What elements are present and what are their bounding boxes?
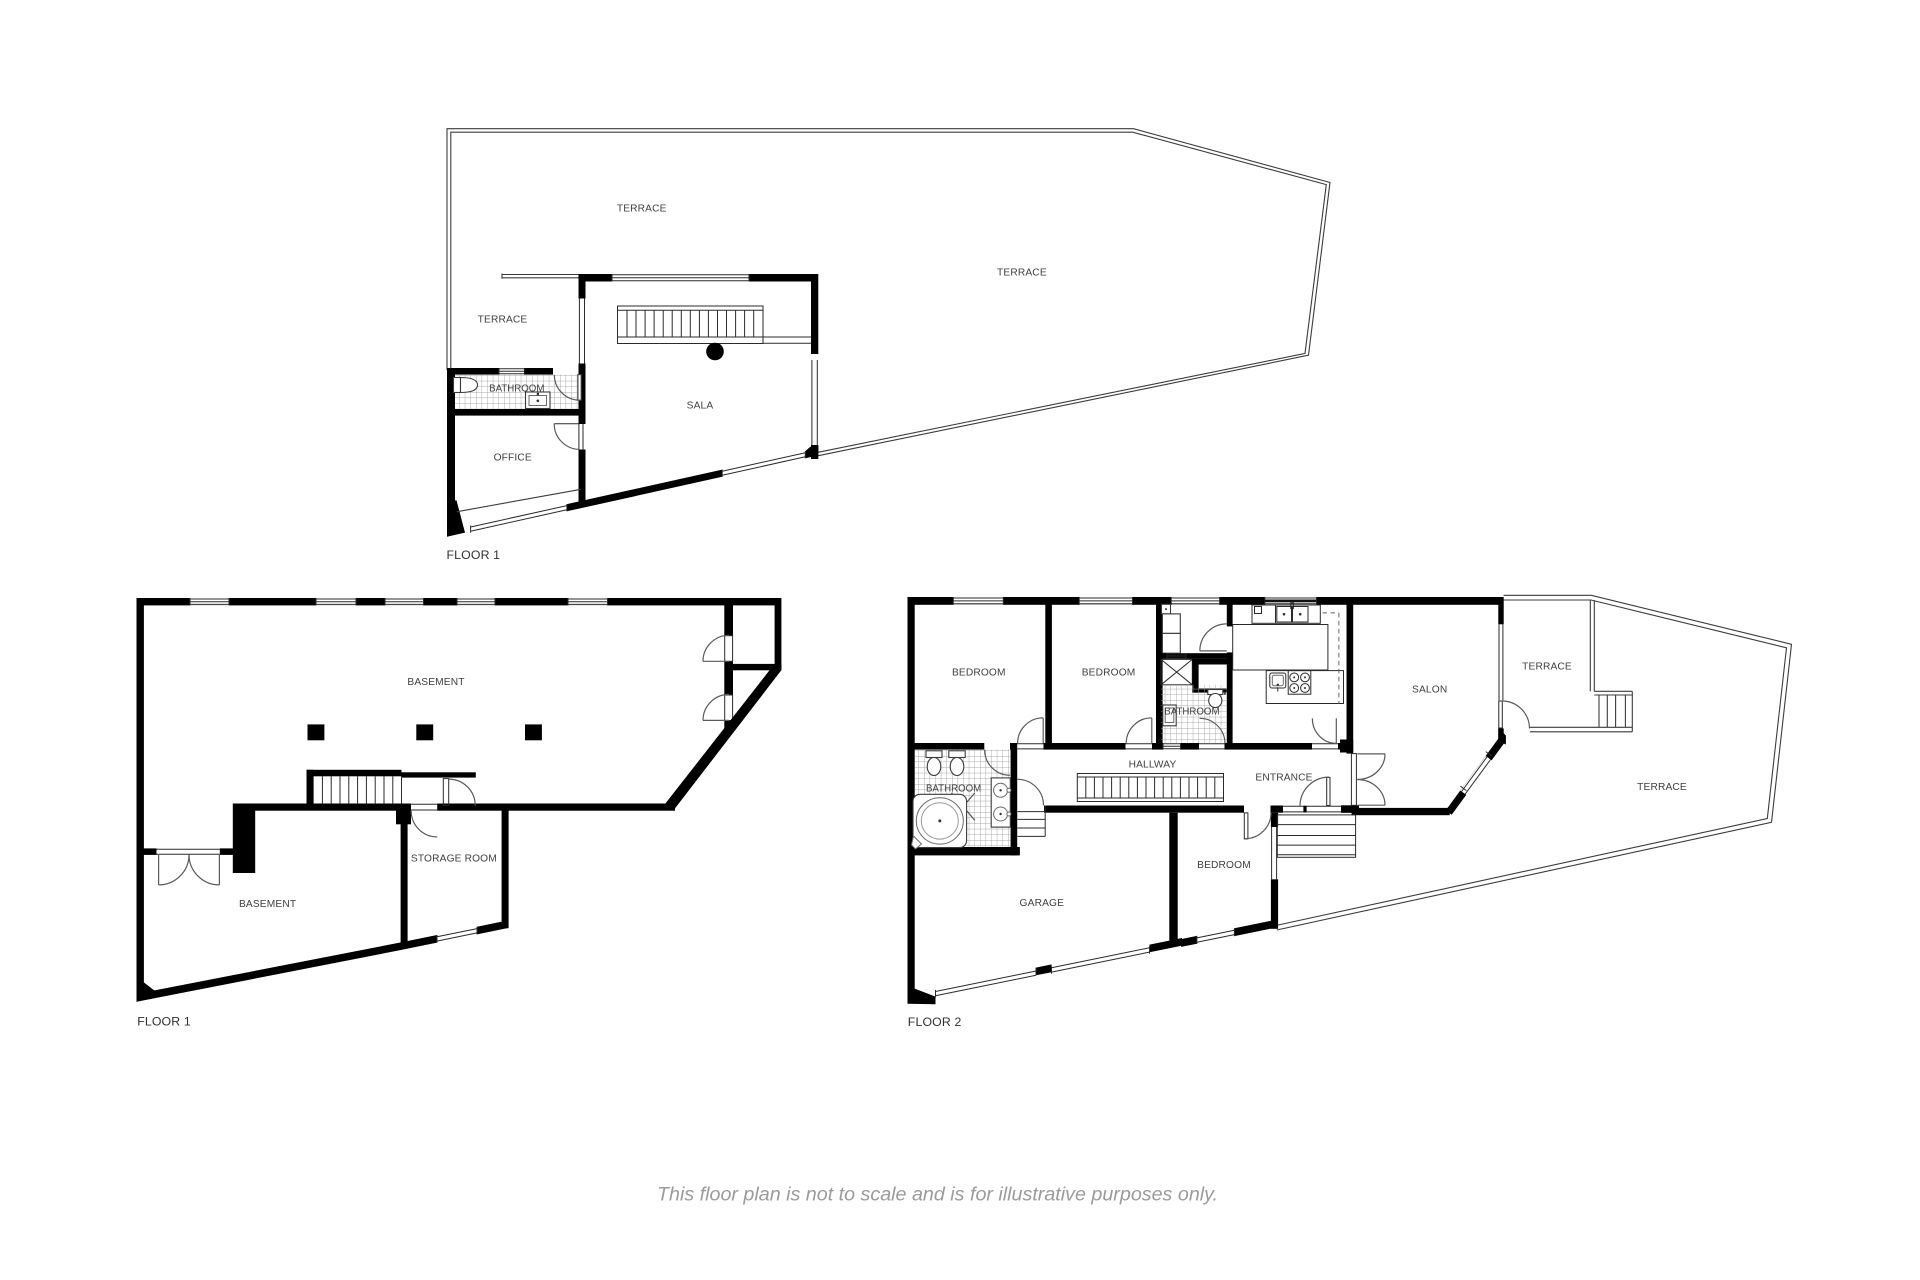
- svg-text:FLOOR 2: FLOOR 2: [908, 1015, 962, 1029]
- svg-text:TERRACE: TERRACE: [1522, 662, 1572, 673]
- svg-text:TERRACE: TERRACE: [478, 314, 528, 325]
- svg-text:TERRACE: TERRACE: [617, 204, 667, 215]
- svg-text:FLOOR 1: FLOOR 1: [137, 1015, 191, 1029]
- svg-text:BEDROOM: BEDROOM: [1197, 860, 1251, 871]
- svg-text:BASEMENT: BASEMENT: [407, 677, 464, 688]
- svg-text:SALON: SALON: [1412, 685, 1447, 696]
- svg-text:BEDROOM: BEDROOM: [1082, 668, 1136, 679]
- svg-text:This floor plan is not to scal: This floor plan is not to scale and is f…: [657, 1184, 1218, 1206]
- svg-text:HALLWAY: HALLWAY: [1129, 760, 1177, 771]
- svg-text:ENTRANCE: ENTRANCE: [1255, 773, 1312, 784]
- svg-text:SALA: SALA: [687, 401, 714, 412]
- svg-text:FLOOR 1: FLOOR 1: [447, 548, 501, 562]
- svg-text:GARAGE: GARAGE: [1020, 898, 1065, 909]
- svg-text:BASEMENT: BASEMENT: [239, 899, 296, 910]
- svg-text:BEDROOM: BEDROOM: [952, 668, 1006, 679]
- svg-text:BATHROOM: BATHROOM: [489, 384, 544, 395]
- svg-text:TERRACE: TERRACE: [1637, 782, 1687, 793]
- svg-text:STORAGE ROOM: STORAGE ROOM: [411, 854, 497, 865]
- svg-text:TERRACE: TERRACE: [997, 268, 1047, 279]
- svg-text:BATHROOM: BATHROOM: [926, 783, 981, 794]
- svg-text:OFFICE: OFFICE: [494, 453, 532, 464]
- svg-text:BATHROOM: BATHROOM: [1164, 706, 1219, 717]
